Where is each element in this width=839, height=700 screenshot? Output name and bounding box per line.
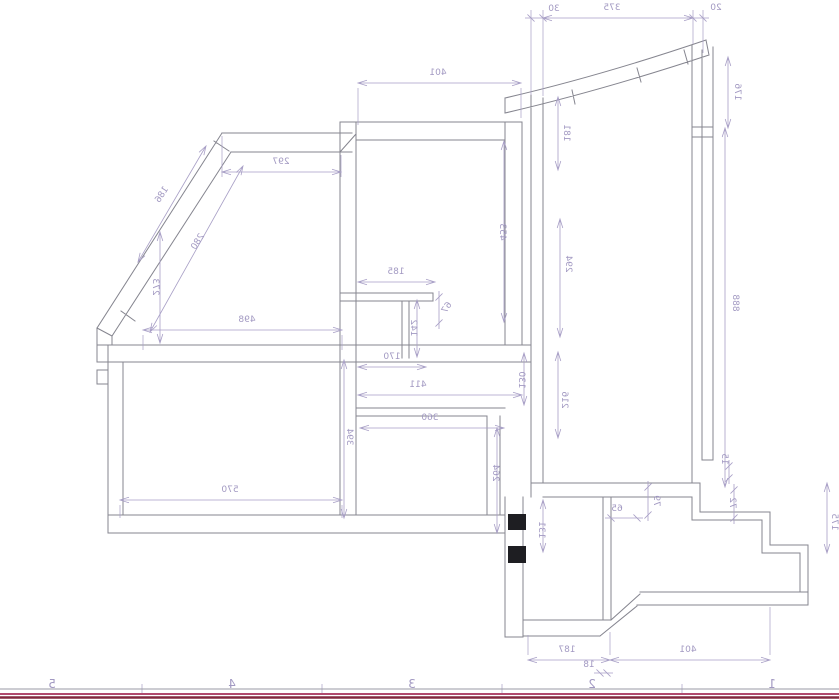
dimension-label: 401 bbox=[429, 68, 446, 78]
dimension-label: 297 bbox=[272, 157, 289, 167]
dimension-label: 360 bbox=[421, 413, 438, 423]
dimension-label: 131 bbox=[536, 521, 546, 538]
dimension-label: 187 bbox=[558, 645, 575, 655]
dimension-label: 264 bbox=[490, 464, 500, 481]
dimension-label: 498 bbox=[238, 315, 255, 325]
dimension-label: 216 bbox=[559, 391, 569, 408]
dimension-label: 20 bbox=[710, 3, 722, 13]
dimension-label: 130 bbox=[516, 371, 526, 388]
cad-viewport: 3037520176181401297186280273498185671421… bbox=[0, 0, 839, 700]
dimension-label: 142 bbox=[408, 319, 418, 336]
dimension-label: 15 bbox=[719, 453, 729, 464]
dimension-label: 185 bbox=[387, 267, 404, 277]
dimension-label: 18 bbox=[583, 660, 595, 670]
dimension-label: 453 bbox=[497, 223, 507, 240]
dimension-label: 294 bbox=[563, 255, 573, 272]
dimension-label: 181 bbox=[561, 124, 571, 141]
dimension-label: 888 bbox=[730, 294, 740, 311]
dimension-label: 401 bbox=[679, 645, 696, 655]
dimension-label: 65 bbox=[611, 504, 622, 514]
dimension-label: 394 bbox=[344, 428, 354, 445]
dimension-label: 175 bbox=[829, 513, 839, 530]
wall-section-fill bbox=[508, 546, 526, 563]
dimension-label: 375 bbox=[603, 3, 620, 13]
dimension-label: 79 bbox=[651, 495, 661, 507]
floor-plan-canvas: 3037520176181401297186280273498185671421… bbox=[0, 0, 839, 700]
dimension-label: 411 bbox=[409, 380, 426, 390]
dimension-label: 30 bbox=[548, 4, 560, 14]
dimension-label: 176 bbox=[732, 83, 742, 100]
wall-section-fill bbox=[508, 514, 526, 530]
dimension-label: 72 bbox=[727, 497, 737, 508]
dimension-label: 170 bbox=[383, 352, 400, 362]
dimension-label: 273 bbox=[150, 278, 160, 295]
dimension-label: 570 bbox=[221, 485, 238, 495]
